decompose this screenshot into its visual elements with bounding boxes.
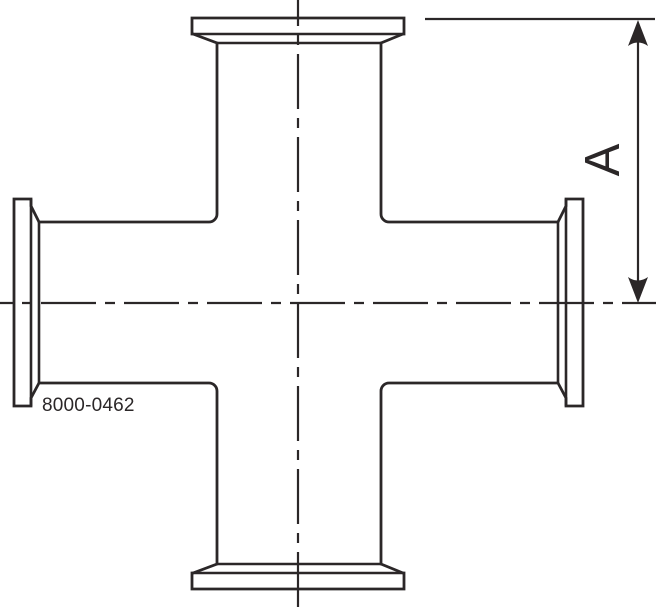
dimension-arrow-top-icon — [628, 20, 648, 46]
cross-fitting-drawing — [0, 0, 660, 607]
dimension-a-label: A — [573, 130, 633, 190]
part-number-label: 8000-0462 — [42, 396, 135, 415]
drawing-canvas: 8000-0462 A — [0, 0, 660, 607]
dimension-arrow-bottom-icon — [628, 277, 648, 303]
